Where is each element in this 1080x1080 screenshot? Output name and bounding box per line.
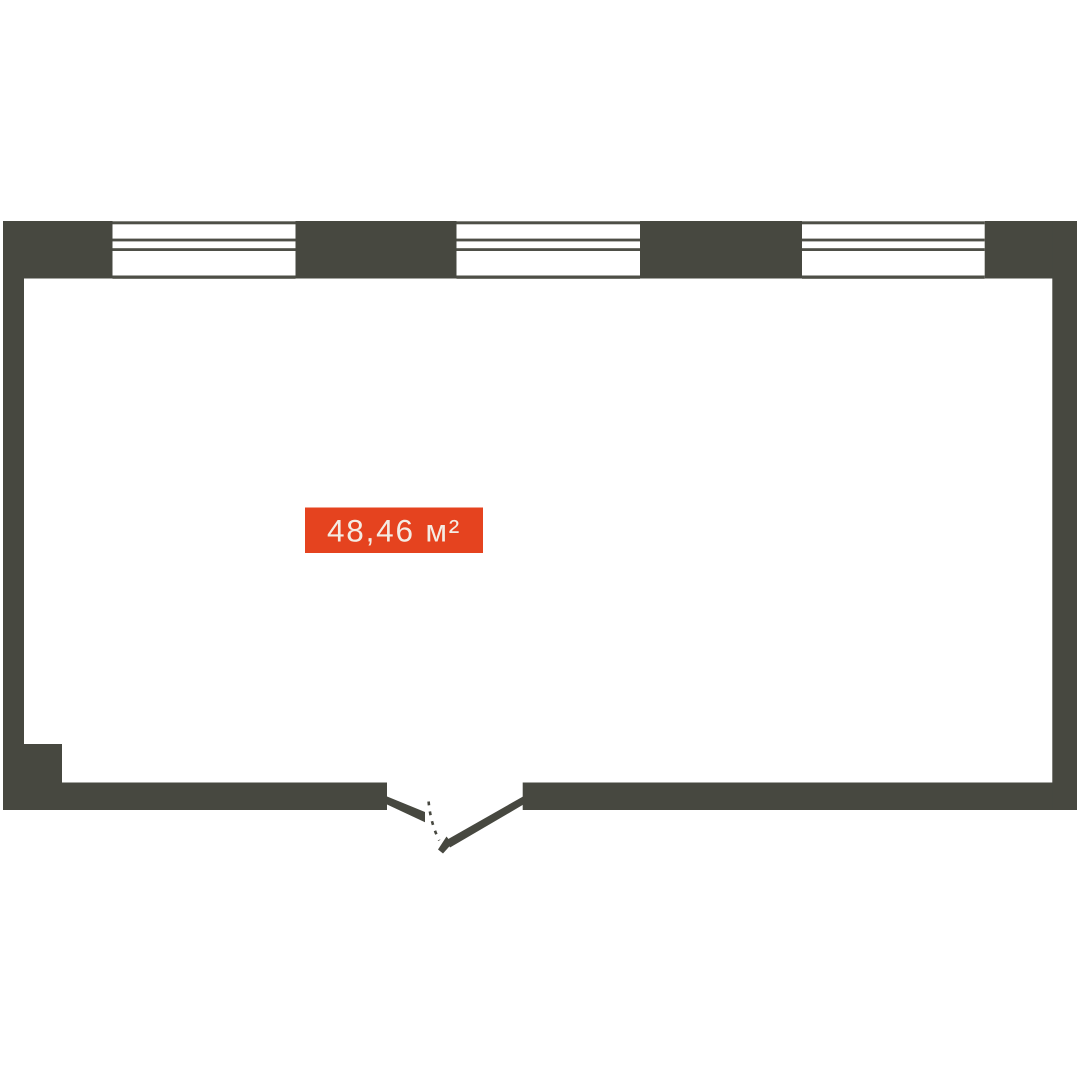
svg-text:48,46 м²: 48,46 м² xyxy=(327,513,461,549)
